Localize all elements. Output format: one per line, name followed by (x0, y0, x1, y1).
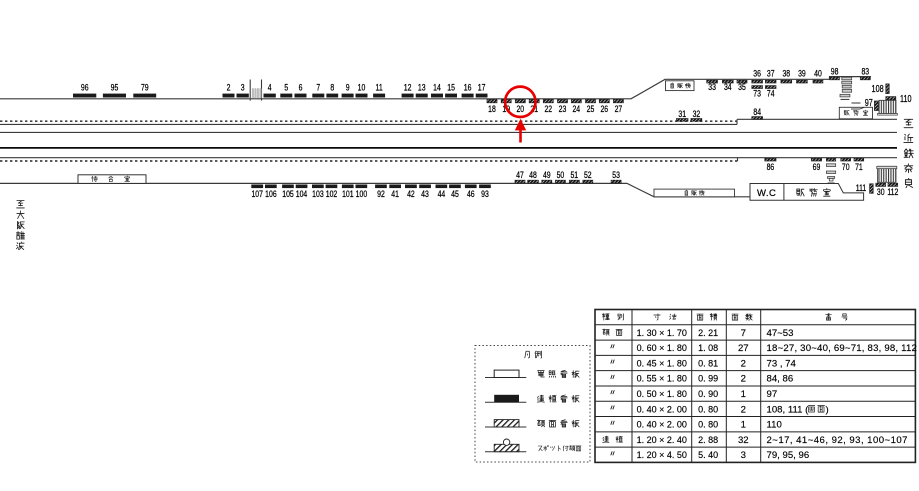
svg-text:110: 110 (767, 420, 782, 431)
svg-text:110: 110 (900, 93, 912, 104)
svg-text:44: 44 (438, 189, 446, 199)
svg-text:108, 111 (: 108, 111 ( (767, 404, 810, 415)
svg-text:97: 97 (865, 97, 873, 108)
svg-text:84, 86: 84, 86 (767, 374, 794, 385)
svg-text:25: 25 (587, 104, 595, 114)
svg-text:4: 4 (268, 83, 272, 93)
svg-text:35: 35 (738, 82, 746, 92)
svg-text:104: 104 (296, 189, 308, 199)
svg-text:39: 39 (798, 68, 806, 78)
svg-text:84: 84 (753, 107, 761, 117)
svg-text:108: 108 (872, 83, 884, 94)
svg-text:111: 111 (856, 183, 867, 193)
svg-text:3: 3 (241, 83, 245, 93)
svg-text:26: 26 (600, 104, 608, 114)
svg-text:8: 8 (330, 83, 334, 93)
svg-text:0. 40 × 2. 00: 0. 40 × 2. 00 (637, 404, 687, 414)
svg-text:20: 20 (516, 104, 524, 114)
svg-text:51: 51 (570, 170, 578, 180)
svg-text:32: 32 (738, 435, 749, 446)
svg-text:27: 27 (738, 343, 749, 354)
svg-text:45: 45 (451, 189, 459, 199)
svg-text:92: 92 (377, 189, 385, 199)
svg-text:70: 70 (842, 162, 850, 172)
svg-text:36: 36 (753, 68, 761, 78)
svg-text:1. 20 × 4. 50: 1. 20 × 4. 50 (637, 450, 687, 460)
svg-text:W.C: W.C (757, 188, 776, 199)
svg-text:98: 98 (831, 66, 839, 76)
svg-text:96: 96 (81, 83, 89, 93)
svg-text:0. 55 × 1. 80: 0. 55 × 1. 80 (637, 374, 687, 384)
svg-text:79, 95, 96: 79, 95, 96 (767, 450, 810, 461)
svg-text:5: 5 (284, 83, 288, 93)
svg-text:10: 10 (358, 83, 366, 93)
svg-text:71: 71 (855, 162, 863, 172)
svg-text:30: 30 (877, 187, 885, 197)
svg-text:1. 20 × 2. 40: 1. 20 × 2. 40 (637, 435, 687, 445)
svg-text:2. 88: 2. 88 (698, 435, 718, 445)
svg-text:23: 23 (559, 104, 567, 114)
svg-text:1: 1 (741, 389, 746, 400)
svg-text:11: 11 (376, 83, 384, 93)
svg-text:0. 60 × 1. 80: 0. 60 × 1. 80 (637, 343, 687, 353)
svg-text:38: 38 (782, 68, 790, 78)
svg-text:0. 81: 0. 81 (698, 358, 718, 368)
svg-text:1. 08: 1. 08 (698, 343, 718, 353)
svg-text:43: 43 (421, 189, 429, 199)
svg-text:86: 86 (767, 162, 775, 172)
svg-text:14: 14 (433, 83, 441, 93)
svg-text:48: 48 (529, 170, 537, 180)
svg-text:27: 27 (615, 104, 623, 114)
svg-text:47: 47 (516, 170, 524, 180)
svg-text:102: 102 (326, 189, 338, 199)
svg-text:106: 106 (265, 189, 277, 199)
svg-text:0. 99: 0. 99 (698, 374, 718, 384)
svg-text:2: 2 (741, 404, 746, 415)
svg-text:18~27, 30~40, 69~71, 83, 98, 1: 18~27, 30~40, 69~71, 83, 98, 112 (767, 343, 918, 354)
svg-text:24: 24 (572, 104, 580, 114)
svg-text:12: 12 (404, 83, 412, 93)
svg-text:32: 32 (693, 109, 701, 119)
svg-text:53: 53 (612, 170, 620, 180)
svg-text:69: 69 (813, 162, 821, 172)
svg-text:52: 52 (584, 170, 592, 180)
svg-text:0. 50 × 1. 80: 0. 50 × 1. 80 (637, 389, 687, 399)
svg-text:31: 31 (678, 109, 686, 119)
svg-text:73: 73 (753, 89, 761, 99)
svg-text:0. 80: 0. 80 (698, 404, 718, 414)
svg-text:2~17, 41~46, 92, 93, 100~107: 2~17, 41~46, 92, 93, 100~107 (767, 435, 908, 446)
svg-text:105: 105 (282, 189, 294, 199)
svg-text:7: 7 (741, 328, 746, 339)
svg-text:95: 95 (111, 83, 119, 93)
svg-text:3: 3 (741, 450, 746, 461)
svg-text:16: 16 (464, 83, 472, 93)
svg-text:15: 15 (447, 83, 455, 93)
svg-text:0. 40 × 2. 00: 0. 40 × 2. 00 (637, 420, 687, 430)
svg-text:): ) (826, 404, 829, 415)
svg-text:101: 101 (342, 189, 354, 199)
svg-text:22: 22 (544, 104, 552, 114)
svg-text:107: 107 (251, 189, 263, 199)
svg-text:2. 21: 2. 21 (698, 328, 718, 338)
svg-text:46: 46 (467, 189, 475, 199)
svg-text:100: 100 (356, 189, 368, 199)
svg-text:13: 13 (418, 83, 426, 93)
svg-text:5. 40: 5. 40 (698, 450, 718, 460)
svg-text:37: 37 (767, 68, 775, 78)
svg-text:79: 79 (141, 83, 149, 93)
svg-text:83: 83 (861, 66, 869, 76)
svg-text:2: 2 (741, 374, 746, 385)
svg-text:73 , 74: 73 , 74 (767, 358, 797, 369)
svg-text:50: 50 (557, 170, 565, 180)
svg-text:74: 74 (767, 89, 775, 99)
svg-text:49: 49 (543, 170, 551, 180)
svg-text:42: 42 (407, 189, 415, 199)
svg-text:6: 6 (299, 83, 303, 93)
svg-text:34: 34 (724, 82, 732, 92)
svg-text:33: 33 (708, 82, 716, 92)
svg-text:7: 7 (316, 83, 320, 93)
svg-text:0. 90: 0. 90 (698, 389, 718, 399)
svg-text:112: 112 (887, 187, 898, 197)
svg-text:41: 41 (391, 189, 399, 199)
svg-text:97: 97 (767, 389, 778, 400)
svg-text:1. 30 × 1. 70: 1. 30 × 1. 70 (637, 328, 687, 338)
svg-text:9: 9 (346, 83, 350, 93)
svg-text:0. 45 × 1. 80: 0. 45 × 1. 80 (637, 358, 687, 368)
svg-text:40: 40 (814, 68, 822, 78)
svg-text:2: 2 (741, 358, 746, 369)
svg-text:17: 17 (478, 83, 486, 93)
svg-text:1: 1 (741, 420, 746, 431)
svg-text:47~53: 47~53 (767, 328, 794, 339)
svg-text:93: 93 (481, 189, 489, 199)
svg-text:18: 18 (488, 104, 496, 114)
svg-text:0. 80: 0. 80 (698, 420, 718, 430)
svg-text:103: 103 (312, 189, 324, 199)
svg-text:2: 2 (227, 83, 231, 93)
